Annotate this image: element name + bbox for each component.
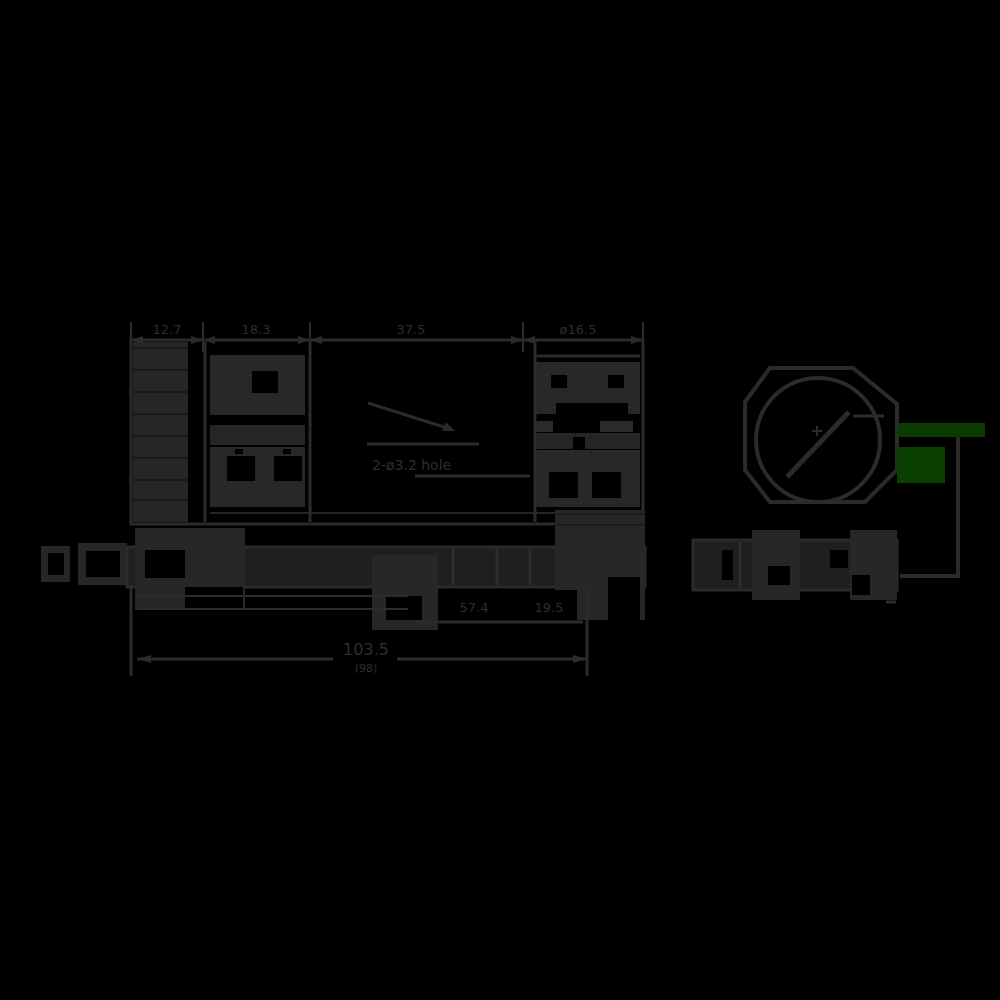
ribbed-strip	[133, 342, 188, 522]
right-module	[535, 356, 640, 507]
top-dimensions: 12.7 18.3 37.5 ø16.5	[131, 322, 643, 352]
front-view	[745, 368, 897, 502]
front-bracket	[752, 530, 800, 600]
dim-label-mid-1: 57.4	[460, 600, 489, 615]
front-side-view	[693, 530, 897, 602]
dim-label-overall: 103.5	[343, 640, 389, 659]
terminal-hole	[549, 472, 578, 498]
terminal-hole	[274, 456, 302, 481]
dim-label-top-3: 37.5	[397, 322, 426, 337]
lens-slash	[787, 412, 849, 477]
top-view: 2-ø3.2 hole	[131, 340, 643, 524]
left-module	[210, 355, 305, 507]
terminal-hole	[592, 472, 621, 498]
dimension-drawing: 2-ø3.2 hole	[0, 0, 1000, 1000]
green-indicator-bar	[898, 423, 985, 437]
terminal-hole	[227, 456, 255, 481]
leader-arrow-line	[368, 403, 447, 428]
dim-label-overall-sub: (98)	[355, 662, 378, 675]
octagon-face	[745, 368, 897, 502]
callout-label: 2-ø3.2 hole	[372, 457, 451, 473]
dim-label-top-4: ø16.5	[560, 322, 597, 337]
arrowhead-icon	[573, 655, 587, 663]
technical-drawing-canvas: 2-ø3.2 hole	[0, 0, 1000, 1000]
green-annotation	[897, 423, 985, 578]
dim-label-top-2: 18.3	[242, 322, 271, 337]
dim-label-mid-2: 19.5	[535, 600, 564, 615]
center-callout: 2-ø3.2 hole	[367, 403, 530, 476]
dim-label-top-1: 12.7	[153, 322, 182, 337]
green-indicator-block	[897, 447, 945, 483]
lens-circle	[756, 378, 880, 502]
arrowhead-icon	[137, 655, 151, 663]
